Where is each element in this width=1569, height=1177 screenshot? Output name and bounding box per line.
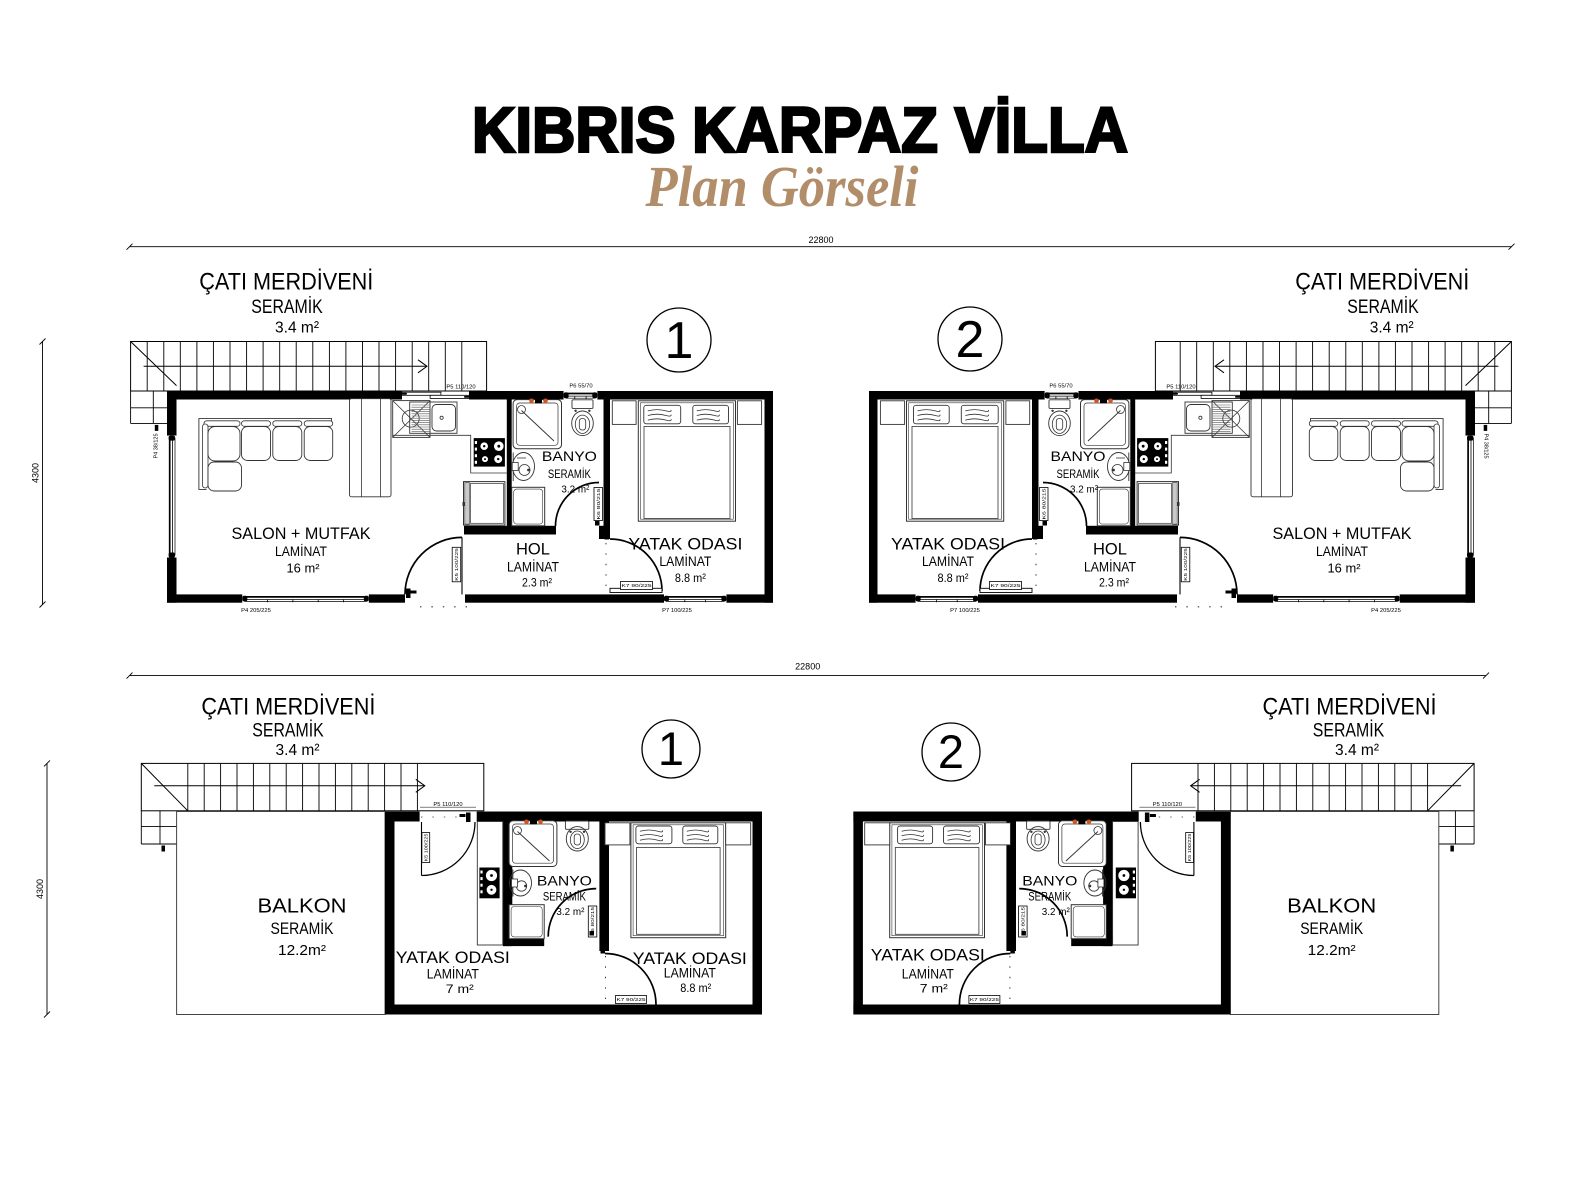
svg-text:16 m²: 16 m² [287,562,320,576]
svg-text:YATAK ODASI: YATAK ODASI [628,534,742,553]
svg-text:YATAK ODASI: YATAK ODASI [396,948,510,967]
svg-text:LAMİNAT: LAMİNAT [1316,544,1368,559]
svg-text:3.2 m²: 3.2 m² [1042,906,1070,918]
svg-text:3.4 m²: 3.4 m² [275,319,320,336]
svg-text:HOL: HOL [1093,540,1127,559]
svg-text:SERAMİK: SERAMİK [548,468,591,481]
svg-text:YATAK ODASI: YATAK ODASI [891,534,1005,553]
svg-text:7 m²: 7 m² [920,981,948,995]
svg-text:3.2 m²: 3.2 m² [561,484,589,496]
svg-text:SERAMİK: SERAMİK [271,919,334,938]
svg-text:YATAK ODASI: YATAK ODASI [871,946,985,965]
svg-text:BALKON: BALKON [1287,894,1376,917]
svg-text:K6 80/215: K6 80/215 [596,488,601,520]
svg-text:ÇATI MERDİVENİ: ÇATI MERDİVENİ [1263,694,1437,721]
svg-text:22800: 22800 [795,661,820,671]
svg-text:BALKON: BALKON [258,894,347,917]
svg-text:P5 110/120: P5 110/120 [1153,802,1182,808]
svg-text:BANYO: BANYO [537,872,592,888]
svg-text:16 m²: 16 m² [1328,562,1361,576]
svg-text:LAMİNAT: LAMİNAT [902,966,954,981]
svg-text:Plan Görseli: Plan Görseli [645,154,919,219]
svg-text:P5 110/120: P5 110/120 [1166,384,1195,390]
svg-text:SERAMİK: SERAMİK [1300,919,1363,938]
svg-text:4300: 4300 [35,879,45,899]
svg-text:K5 100/225: K5 100/225 [1187,833,1192,862]
svg-text:2: 2 [956,311,985,369]
svg-text:K7 90/225: K7 90/225 [991,583,1022,588]
svg-text:P6 55/70: P6 55/70 [569,384,592,390]
svg-text:LAMİNAT: LAMİNAT [427,967,479,982]
svg-text:P5 110/120: P5 110/120 [433,802,462,808]
svg-text:K6 80/215: K6 80/215 [1041,488,1046,520]
svg-text:3.4 m²: 3.4 m² [1370,319,1415,336]
svg-text:SERAMİK: SERAMİK [1028,890,1071,903]
svg-text:P4 38/125: P4 38/125 [154,433,160,458]
svg-text:2.3 m²: 2.3 m² [1099,575,1129,589]
svg-text:12.2m²: 12.2m² [278,943,326,959]
svg-text:7 m²: 7 m² [446,982,474,996]
svg-text:ÇATI MERDİVENİ: ÇATI MERDİVENİ [199,269,373,296]
svg-text:SERAMİK: SERAMİK [1347,297,1419,318]
svg-text:1: 1 [658,722,684,775]
svg-text:P4 205/225: P4 205/225 [241,608,271,614]
svg-text:P4 205/225: P4 205/225 [1371,608,1401,614]
svg-text:P6 55/70: P6 55/70 [1049,384,1072,390]
svg-text:P7 100/225: P7 100/225 [662,608,692,614]
svg-text:ÇATI MERDİVENİ: ÇATI MERDİVENİ [1295,269,1469,296]
svg-text:LAMİNAT: LAMİNAT [659,554,711,569]
svg-text:3.4 m²: 3.4 m² [276,742,321,759]
svg-text:SERAMİK: SERAMİK [1057,468,1100,481]
svg-text:22800: 22800 [808,235,833,245]
svg-text:8.8 m²: 8.8 m² [680,981,711,995]
svg-text:K7 90/225: K7 90/225 [622,583,653,588]
svg-text:P5 110/120: P5 110/120 [446,384,475,390]
svg-text:2.3 m²: 2.3 m² [522,575,552,589]
svg-text:3.4 m²: 3.4 m² [1335,742,1380,759]
svg-text:2: 2 [938,725,964,778]
svg-text:P4 38/125: P4 38/125 [1483,433,1489,458]
svg-text:LAMİNAT: LAMİNAT [507,560,559,575]
svg-text:K5 100/225: K5 100/225 [423,833,428,862]
svg-text:LAMİNAT: LAMİNAT [664,966,716,981]
svg-text:K7 90/225: K7 90/225 [617,997,647,1002]
svg-text:1: 1 [665,312,694,370]
svg-text:K7 90/225: K7 90/225 [970,997,1000,1002]
svg-text:SALON + MUTFAK: SALON + MUTFAK [1273,524,1413,543]
svg-text:3.2 m²: 3.2 m² [556,906,584,918]
svg-text:BANYO: BANYO [1022,872,1077,888]
svg-text:SERAMİK: SERAMİK [1313,720,1385,741]
svg-text:LAMİNAT: LAMİNAT [1084,560,1136,575]
svg-text:ÇATI MERDİVENİ: ÇATI MERDİVENİ [201,694,375,721]
svg-text:4300: 4300 [31,463,41,483]
svg-text:8.8 m²: 8.8 m² [938,571,969,585]
svg-text:LAMİNAT: LAMİNAT [275,544,327,559]
svg-text:K5 100/225: K5 100/225 [454,548,459,581]
svg-text:8.8 m²: 8.8 m² [675,571,706,585]
svg-text:SALON + MUTFAK: SALON + MUTFAK [232,524,372,543]
svg-text:12.2m²: 12.2m² [1308,943,1356,959]
svg-text:SERAMİK: SERAMİK [251,297,323,318]
svg-text:BANYO: BANYO [1051,448,1106,464]
svg-text:3.2 m²: 3.2 m² [1070,484,1098,496]
svg-text:K5 100/225: K5 100/225 [1183,548,1188,581]
svg-text:BANYO: BANYO [542,448,597,464]
svg-text:HOL: HOL [516,540,550,559]
svg-text:LAMİNAT: LAMİNAT [922,554,974,569]
svg-text:SERAMİK: SERAMİK [252,720,324,741]
svg-text:P7 100/225: P7 100/225 [950,608,980,614]
svg-text:SERAMİK: SERAMİK [543,890,586,903]
